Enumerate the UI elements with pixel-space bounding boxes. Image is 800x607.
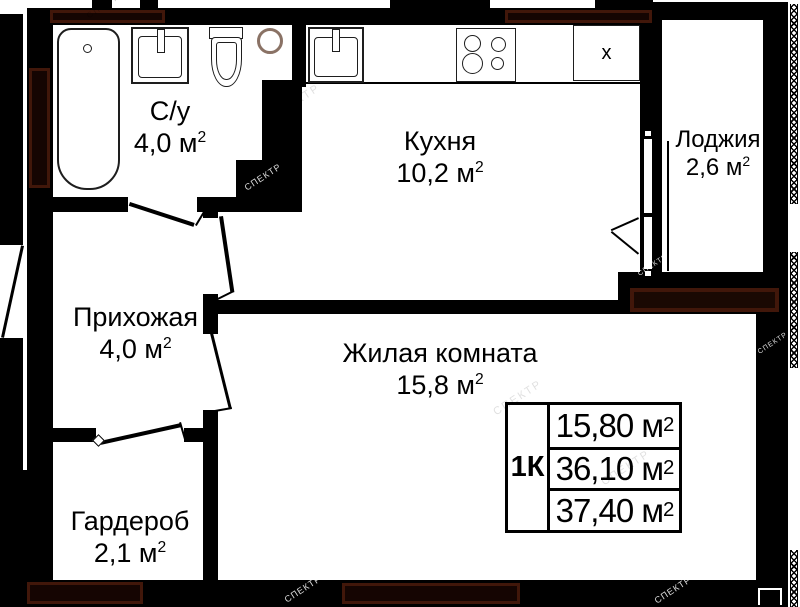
room-label-hallway: Прихожая 4,0 м2 [53, 302, 218, 366]
room-area-sup: 2 [742, 153, 750, 169]
stove-burner-icon [491, 37, 506, 52]
room-area-sup: 2 [197, 129, 206, 146]
room-name: Гардероб [52, 506, 208, 538]
room-area-value: 2,6 м [686, 154, 743, 181]
hatch-left-wall [29, 68, 50, 188]
hatch-loggia-bottom [630, 288, 779, 312]
glazing-strip-middle [790, 252, 798, 368]
fridge-x-mark: x [602, 42, 612, 65]
toilet-bowl-inner [216, 42, 237, 80]
wall-living-right [756, 314, 788, 607]
wall-kitchen-living [215, 300, 640, 314]
wall-left-outer-upper [0, 14, 23, 245]
bathtub-drain-icon [83, 44, 92, 53]
floor-plan: x С/у 4,0 м2 Кухня 10,2 м2 Лоджия 2,6 м2… [0, 0, 800, 607]
window-cap-top [644, 130, 652, 137]
room-name: Прихожая [53, 302, 218, 334]
glazing-strip-top [790, 4, 798, 204]
wall-left-outer-lower [0, 338, 23, 607]
room-area-value: 2,1 м [94, 538, 158, 568]
kitchen-sink-faucet-icon [332, 29, 340, 52]
washing-machine-icon [257, 28, 283, 54]
wall-notch-bottom-right [758, 588, 782, 605]
hatch-top-left [50, 10, 165, 23]
door-hall-kitchen-swing [217, 291, 234, 300]
window-sash-upper [643, 138, 653, 214]
wall-hall-right-stub [203, 212, 218, 218]
room-name: Жилая комната [290, 338, 590, 370]
door-entrance-leaf [2, 245, 24, 337]
door-wardrobe-leaf [100, 423, 182, 445]
apartment-type-label: 1К [508, 405, 550, 530]
stove-burner-icon [462, 53, 483, 74]
wall-bathroom-bottom-left [27, 197, 128, 212]
room-name: С/у [95, 96, 245, 128]
room-label-wardrobe: Гардероб 2,1 м2 [52, 506, 208, 570]
table-value: 37,40 м [556, 492, 663, 530]
room-name: Лоджия [660, 126, 776, 154]
room-area: 15,8 м2 [290, 370, 590, 402]
stove-burner-icon [491, 57, 504, 70]
room-area-sup: 2 [475, 159, 484, 176]
area-summary-table: 1К 15,80 м2 36,10 м2 37,40 м2 [505, 402, 682, 533]
wall-bathroom-kitchen [292, 25, 306, 87]
room-name: Кухня [340, 126, 540, 158]
room-area-value: 4,0 м [134, 128, 198, 158]
room-area: 2,6 м2 [660, 154, 776, 182]
room-label-loggia: Лоджия 2,6 м2 [660, 126, 776, 183]
table-row-living-area: 15,80 м2 [550, 405, 679, 447]
wall-hall-wardrobe-left [27, 428, 96, 442]
room-area-value: 15,8 м [396, 370, 475, 400]
hatch-bottom-left [27, 582, 143, 604]
table-value: 15,80 м [556, 407, 663, 445]
wall-top-loggia [640, 2, 788, 20]
room-area-sup: 2 [475, 371, 484, 388]
room-area-value: 4,0 м [99, 334, 163, 364]
room-area: 2,1 м2 [52, 538, 208, 570]
door-balcony-swing-lower [611, 231, 639, 254]
room-label-living: Жилая комната 15,8 м2 [290, 338, 590, 402]
room-area: 4,0 м2 [53, 334, 218, 366]
door-balcony-swing-upper [611, 218, 639, 231]
room-area-sup: 2 [157, 539, 166, 556]
hatch-top-right [505, 10, 652, 23]
bath-sink-faucet-icon [157, 29, 165, 53]
room-area: 4,0 м2 [95, 128, 245, 160]
glazing-strip-bottom [790, 550, 798, 607]
room-area-sup: 2 [163, 335, 172, 352]
room-label-kitchen: Кухня 10,2 м2 [340, 126, 540, 190]
wall-shaft-upper [262, 80, 302, 162]
door-hall-living-swing [209, 408, 232, 413]
room-area: 10,2 м2 [340, 158, 540, 190]
door-hall-kitchen-leaf [220, 216, 235, 293]
wall-hall-wardrobe-right [184, 428, 218, 442]
table-row-total-area: 37,40 м2 [550, 488, 679, 530]
room-area-value: 10,2 м [396, 158, 475, 188]
room-label-bathroom: С/у 4,0 м2 [95, 96, 245, 160]
fridge-icon: x [573, 25, 640, 81]
stove-burner-icon [464, 35, 481, 52]
hatch-bottom-middle [342, 583, 520, 604]
door-bathroom-leaf [129, 202, 195, 227]
